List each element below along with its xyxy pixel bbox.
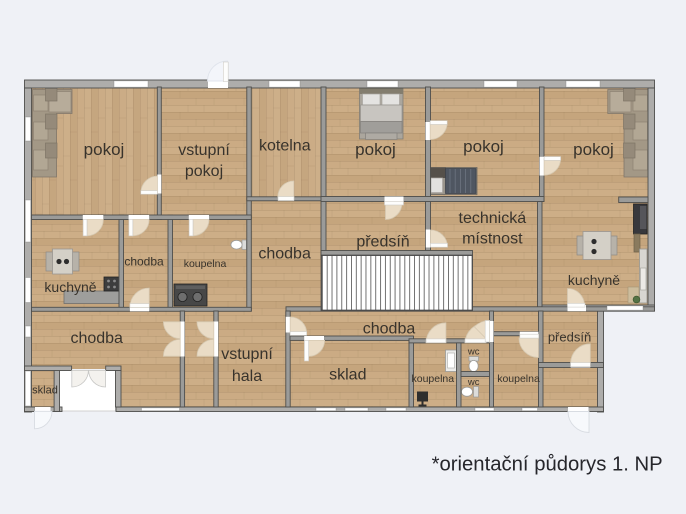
svg-text:vstupní: vstupní	[178, 142, 230, 159]
svg-text:pokoj: pokoj	[355, 140, 396, 159]
svg-text:hala: hala	[232, 368, 262, 385]
svg-text:pokoj: pokoj	[185, 163, 223, 180]
svg-text:sklad: sklad	[329, 367, 366, 384]
svg-text:wc: wc	[467, 377, 480, 388]
svg-text:předsíň: předsíň	[548, 330, 591, 345]
svg-text:wc: wc	[467, 347, 480, 358]
svg-text:*orientační půdorys 1. NP: *orientační půdorys 1. NP	[432, 454, 663, 476]
svg-text:pokoj: pokoj	[84, 140, 125, 159]
svg-text:sklad: sklad	[32, 385, 58, 397]
svg-text:pokoj: pokoj	[463, 137, 504, 156]
svg-text:koupelna: koupelna	[411, 373, 454, 385]
svg-text:kuchyně: kuchyně	[568, 272, 620, 288]
svg-text:koupelna: koupelna	[184, 258, 227, 270]
svg-text:předsíň: předsíň	[356, 234, 409, 251]
svg-text:koupelna: koupelna	[497, 373, 540, 385]
svg-text:chodba: chodba	[258, 246, 311, 263]
svg-text:chodba: chodba	[70, 330, 123, 347]
svg-text:chodba: chodba	[363, 321, 416, 338]
svg-text:místnost: místnost	[462, 231, 523, 248]
svg-text:pokoj: pokoj	[573, 140, 614, 159]
svg-text:kuchyně: kuchyně	[44, 279, 96, 295]
svg-text:technická: technická	[459, 210, 527, 227]
svg-text:vstupní: vstupní	[221, 346, 273, 363]
svg-text:kotelna: kotelna	[259, 138, 311, 155]
svg-text:chodba: chodba	[124, 255, 164, 269]
